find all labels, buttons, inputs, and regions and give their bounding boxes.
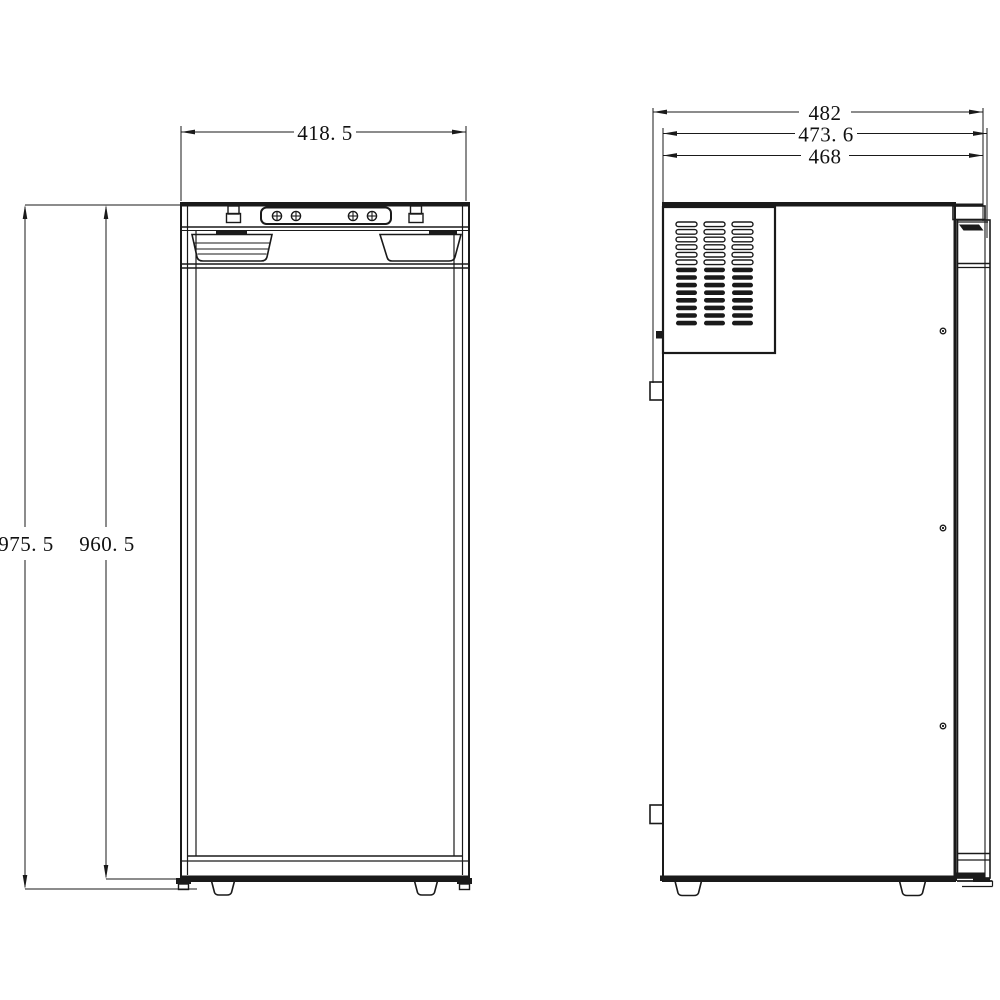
screw-icon	[940, 723, 946, 729]
side-body	[650, 203, 983, 881]
dim-label-side-depth-overall: 482	[809, 101, 842, 125]
vent-panel	[663, 207, 775, 353]
dim-label-front-width: 418. 5	[297, 121, 353, 145]
panel-screws	[272, 211, 376, 220]
screw-icon	[291, 211, 300, 220]
door-top-cap	[953, 206, 985, 220]
dim-label-front-height-cabinet: 960. 5	[79, 532, 135, 556]
screw-icon	[367, 211, 376, 220]
dim-label-front-height-overall: 975. 5	[0, 532, 54, 556]
front-pockets	[192, 235, 461, 262]
front-cabinet	[181, 203, 469, 881]
side-dim-depth-with-door: 473. 6	[663, 123, 987, 239]
side-door	[953, 206, 993, 887]
screw-icon	[940, 525, 946, 531]
hinge-mark	[959, 225, 984, 231]
technical-drawing: 418. 5 975. 5 960. 5	[0, 0, 1000, 1000]
dim-label-side-depth-body: 468	[809, 145, 842, 169]
side-screws	[940, 328, 946, 729]
drawing-canvas: 418. 5 975. 5 960. 5	[0, 0, 1000, 1000]
front-view: 418. 5 975. 5 960. 5	[0, 121, 472, 895]
front-dim-cabinet-height: 960. 5	[79, 205, 180, 879]
left-pocket	[192, 235, 272, 262]
vent-slots	[676, 222, 753, 325]
rear-bracket-upper	[650, 382, 663, 400]
screw-icon	[940, 328, 946, 334]
rear-bracket-lower	[650, 805, 663, 824]
front-door	[188, 231, 463, 857]
right-pocket	[380, 235, 461, 262]
front-dim-width: 418. 5	[181, 121, 466, 201]
side-dim-body-depth: 468	[663, 145, 983, 169]
screw-icon	[272, 211, 281, 220]
dim-label-side-depth-door: 473. 6	[798, 123, 854, 147]
side-view: 482 473. 6 468	[650, 101, 993, 896]
side-feet	[675, 881, 926, 896]
screw-icon	[348, 211, 357, 220]
